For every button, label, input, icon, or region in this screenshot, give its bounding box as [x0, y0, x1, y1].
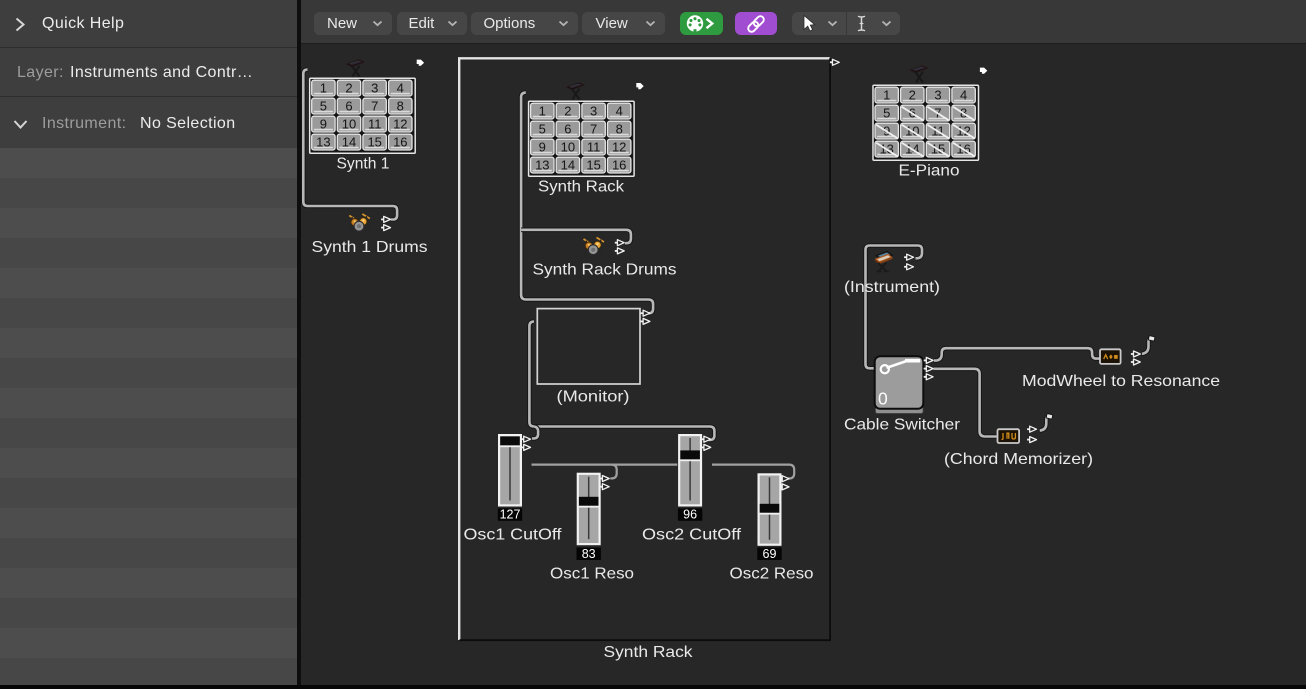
svg-text:(Chord Memorizer): (Chord Memorizer): [944, 451, 1093, 468]
svg-text:16: 16: [611, 158, 625, 173]
svg-text:ModWheel to Resonance: ModWheel to Resonance: [1022, 373, 1220, 390]
svg-text:Cable Switcher: Cable Switcher: [844, 417, 961, 434]
svg-text:Osc1 CutOff: Osc1 CutOff: [463, 527, 562, 544]
svg-text:2: 2: [345, 81, 352, 96]
svg-text:Synth Rack: Synth Rack: [538, 179, 625, 196]
svg-text:15: 15: [367, 135, 381, 150]
svg-text:7: 7: [589, 122, 596, 137]
svg-text:5: 5: [319, 99, 326, 114]
svg-text:Synth Rack Drums: Synth Rack Drums: [532, 262, 676, 279]
svg-text:4: 4: [396, 81, 403, 96]
svg-text:12: 12: [393, 117, 407, 132]
svg-text:2: 2: [908, 88, 915, 103]
svg-text:8: 8: [615, 122, 622, 137]
svg-text:3: 3: [371, 81, 378, 96]
svg-text:Osc2 Reso: Osc2 Reso: [729, 566, 813, 583]
svg-text:1: 1: [319, 81, 326, 96]
svg-text:5: 5: [538, 122, 545, 137]
svg-text:96: 96: [683, 508, 697, 522]
svg-text:7: 7: [371, 99, 378, 114]
svg-text:9: 9: [538, 140, 545, 155]
svg-text:Osc2 CutOff: Osc2 CutOff: [642, 527, 742, 544]
svg-text:6: 6: [564, 122, 571, 137]
svg-text:8: 8: [396, 99, 403, 114]
svg-text:83: 83: [581, 547, 595, 561]
svg-text:10: 10: [560, 140, 574, 155]
svg-text:12: 12: [611, 140, 625, 155]
svg-text:15: 15: [586, 158, 600, 173]
svg-text:127: 127: [499, 508, 520, 522]
svg-text:69: 69: [762, 547, 776, 561]
svg-text:(Monitor): (Monitor): [556, 389, 629, 406]
svg-text:16: 16: [393, 135, 407, 150]
svg-text:3: 3: [934, 88, 941, 103]
svg-text:13: 13: [535, 158, 549, 173]
svg-text:1: 1: [883, 88, 890, 103]
svg-text:5: 5: [883, 106, 890, 121]
svg-text:Synth 1 Drums: Synth 1 Drums: [311, 239, 427, 256]
svg-text:11: 11: [367, 117, 381, 132]
svg-text:9: 9: [319, 117, 326, 132]
svg-text:13: 13: [316, 135, 330, 150]
svg-text:14: 14: [560, 158, 574, 173]
svg-text:Synth 1: Synth 1: [336, 156, 389, 173]
svg-text:4: 4: [959, 88, 966, 103]
svg-text:Osc1 Reso: Osc1 Reso: [550, 566, 634, 583]
svg-text:3: 3: [589, 104, 596, 119]
svg-text:14: 14: [341, 135, 355, 150]
svg-text:6: 6: [345, 99, 352, 114]
svg-text:4: 4: [615, 104, 622, 119]
svg-text:1: 1: [538, 104, 545, 119]
svg-text:10: 10: [341, 117, 355, 132]
svg-text:11: 11: [586, 140, 600, 155]
svg-text:0: 0: [878, 389, 888, 409]
svg-text:(Instrument): (Instrument): [844, 279, 940, 296]
svg-text:E-Piano: E-Piano: [898, 163, 959, 180]
svg-text:Synth Rack: Synth Rack: [603, 644, 693, 661]
svg-text:2: 2: [564, 104, 571, 119]
